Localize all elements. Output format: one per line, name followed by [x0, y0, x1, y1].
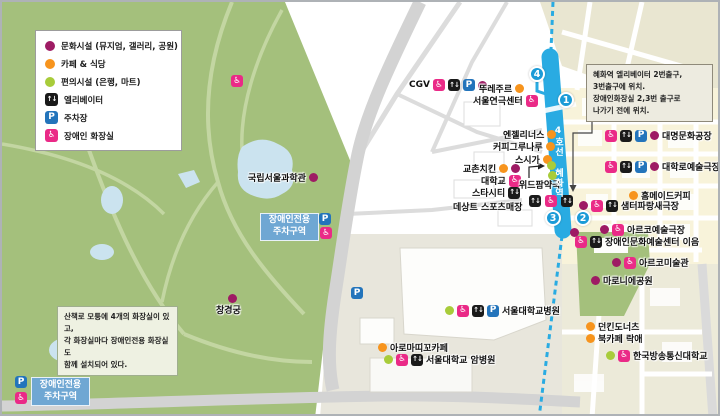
- culture-dot: [612, 258, 621, 267]
- poi-seoul-theater-center: 서울연극센터♿: [473, 94, 538, 107]
- poi-changgyeonggung: 창경궁: [216, 303, 241, 316]
- infobox-line: 산책로 모퉁에 4개의 화장실이 있고,: [64, 311, 171, 335]
- poi-label: 북카페 락애: [598, 332, 643, 345]
- wheelchair-icon: ♿: [396, 354, 408, 366]
- poi-label: 커피그루나루: [493, 140, 543, 153]
- legend-label: 문화시설 (뮤지엄, 갤러리, 공원): [61, 40, 178, 52]
- wheelchair-icon: ♿: [433, 79, 445, 91]
- legend-label: 장애인 화장실: [64, 130, 114, 142]
- exit-3: 3: [545, 210, 561, 226]
- reserved-parking-line2: 주차구역: [261, 227, 318, 239]
- poi-arko-art-museum: ♿아르코미술관: [612, 256, 689, 269]
- wheelchair-icon: ♿: [526, 95, 538, 107]
- poi-label: 샘터파랑새극장: [621, 199, 679, 212]
- legend-label: 카페 & 식당: [61, 58, 106, 70]
- legend-label: 주차장: [64, 112, 87, 124]
- wheelchair-icon: ♿: [45, 129, 58, 142]
- poi-label: 데상트 스포츠매장: [453, 200, 522, 213]
- parking-icon: P: [487, 305, 499, 317]
- poi-label: 대명문화공장: [662, 129, 712, 142]
- poi-label: 아르코미술관: [639, 256, 689, 269]
- convenience-dot: [445, 306, 454, 315]
- poi-national-science-museum: 국립서울과학관: [248, 171, 318, 184]
- infobox-line: 장애인화장실 2,3번 출구로: [593, 93, 706, 105]
- parking-icon: P: [45, 111, 58, 124]
- infobox-line: 함께 설치되어 있다.: [64, 359, 171, 371]
- park-toilets-infobox: 산책로 모퉁에 4개의 화장실이 있고, 각 화장실마다 장애인전용 화장실도 …: [57, 306, 178, 376]
- parking-icon: P: [351, 287, 363, 299]
- reserved-parking-line2: 주차구역: [32, 392, 89, 404]
- culture-dot: [228, 294, 237, 303]
- cafe-dot: [515, 84, 524, 93]
- elevator-icon: ↑↓: [411, 354, 423, 366]
- legend-item-elevator: ↑↓ 엘리베이터: [45, 93, 172, 106]
- poi-coffee-gurunaru: 커피그루나루: [493, 140, 555, 153]
- infobox-line: 나가기 전에 위치.: [593, 105, 706, 117]
- elevator-icon: ↑↓: [472, 305, 484, 317]
- poi-daehakro-arts-theater: ♿↑↓P대학로예술극장: [605, 160, 720, 173]
- poi-cgv: CGV♿↑↓P: [409, 79, 487, 91]
- culture-dot: [511, 164, 520, 173]
- station-elevator-infobox: 혜화역 엘리베이터 2번출구, 3번출구에 위치. 장애인화장실 2,3번 출구…: [586, 64, 713, 122]
- cafe-dot: [378, 343, 387, 352]
- reserved-parking-label-bottom: 장애인전용 주차구역: [31, 377, 90, 406]
- exit-2: 2: [575, 210, 591, 226]
- poi-snu-cancer-hospital: ♿↑↓서울대학교 암병원: [384, 353, 495, 366]
- cafe-dot: [586, 322, 595, 331]
- poi-saemteo-parangsae-theater: ♿↑↓샘터파랑새극장: [579, 199, 679, 212]
- poi-ieum-center: ♿↑↓장애인문화예술센터 이음: [575, 235, 699, 248]
- legend-label: 엘리베이터: [64, 94, 103, 106]
- wheelchair-icon: ♿: [457, 305, 469, 317]
- poi-label: 국립서울과학관: [248, 171, 306, 184]
- legend-label: 편의시설 (은행, 마트): [61, 76, 140, 88]
- culture-dot: [591, 276, 600, 285]
- poi-snu-hospital: ♿↑↓P서울대학교병원: [445, 304, 560, 317]
- convenience-dot: [606, 351, 615, 360]
- cafe-dot: [586, 334, 595, 343]
- wheelchair-icon: ♿: [231, 75, 243, 87]
- poi-knou-university: ♿한국방송통신대학교: [606, 349, 708, 362]
- infobox-line: 혜화역 엘리베이터 2번출구,: [593, 69, 706, 81]
- legend-item-convenience: 편의시설 (은행, 마트): [45, 75, 172, 88]
- wheelchair-icon: ♿: [575, 236, 587, 248]
- culture-dot: [309, 173, 318, 182]
- culture-dot: [45, 41, 55, 51]
- poi-label: 스타시티: [472, 186, 505, 199]
- poi-maronnier-park: 마로니에공원: [591, 274, 653, 287]
- parking-icon: P: [635, 161, 647, 173]
- wheelchair-icon: ♿: [612, 224, 624, 236]
- culture-dot: [579, 201, 588, 210]
- elevator-icon: ↑↓: [620, 130, 632, 142]
- cafe-dot: [499, 164, 508, 173]
- culture-dot: [650, 131, 659, 140]
- legend-item-parking: P 주차장: [45, 111, 172, 124]
- poi-label: 창경궁: [216, 303, 241, 316]
- reserved-parking-line1: 장애인전용: [32, 380, 89, 392]
- legend-item-culture: 문화시설 (뮤지엄, 갤러리, 공원): [45, 39, 172, 52]
- parking-icon: P: [15, 376, 27, 388]
- exit-1: 1: [558, 92, 574, 108]
- wheelchair-icon: ♿: [605, 161, 617, 173]
- infobox-line: 각 화장실마다 장애인전용 화장실도: [64, 335, 171, 359]
- legend: 문화시설 (뮤지엄, 갤러리, 공원) 카페 & 식당 편의시설 (은행, 마트…: [35, 30, 182, 151]
- reserved-parking-label-mid: 장애인전용 주차구역: [260, 213, 319, 241]
- parking-icon: P: [319, 213, 331, 225]
- poi-book-cafe-rakae: 북카페 락애: [586, 332, 643, 345]
- wheelchair-icon: ♿: [618, 350, 630, 362]
- elevator-icon: ↑↓: [529, 195, 541, 207]
- poi-label: CGV: [409, 80, 430, 90]
- wheelchair-icon: ♿: [15, 392, 27, 404]
- exit-4: 4: [529, 66, 545, 82]
- poi-label: 서울대학교병원: [502, 304, 560, 317]
- legend-item-cafe: 카페 & 식당: [45, 57, 172, 70]
- wheelchair-icon: ♿: [605, 130, 617, 142]
- poi-label: 대학로예술극장: [662, 160, 720, 173]
- poi-descente-sports: 데상트 스포츠매장: [453, 200, 522, 213]
- elevator-icon: ↑↓: [448, 79, 460, 91]
- legend-item-accessible-toilet: ♿ 장애인 화장실: [45, 129, 172, 142]
- elevator-icon: ↑↓: [45, 93, 58, 106]
- elevator-icon: ↑↓: [590, 236, 602, 248]
- convenience-dot: [384, 355, 393, 364]
- poi-daemyung-culture-factory: ♿↑↓P대명문화공장: [605, 129, 712, 142]
- culture-dot: [650, 162, 659, 171]
- poi-label: 장애인문화예술센터 이음: [605, 235, 699, 248]
- parking-icon: P: [635, 130, 647, 142]
- parking-icon: P: [463, 79, 475, 91]
- poi-label: 마로니에공원: [603, 274, 653, 287]
- infobox-line: 3번출구에 위치.: [593, 81, 706, 93]
- poi-label: 한국방송통신대학교: [633, 349, 708, 362]
- station-name-label: 4호선 혜화역: [552, 126, 565, 198]
- convenience-dot: [45, 77, 55, 87]
- poi-label: 서울대학교 암병원: [426, 353, 495, 366]
- culture-dot: [570, 228, 579, 237]
- elevator-icon: ↑↓: [606, 200, 618, 212]
- elevator-icon: ↑↓: [620, 161, 632, 173]
- cafe-dot: [45, 59, 55, 69]
- poi-starcity: 스타시티↑↓: [472, 186, 520, 199]
- poi-label: 서울연극센터: [473, 94, 523, 107]
- wheelchair-icon: ♿: [320, 227, 332, 239]
- reserved-parking-line1: 장애인전용: [261, 215, 318, 227]
- accessibility-map: CGV♿↑↓P뚜레주르서울연극센터♿엔젤리너스커피그루나루스시가교촌치킨대학교♿…: [0, 0, 720, 416]
- wheelchair-icon: ♿: [591, 200, 603, 212]
- culture-dot: [600, 225, 609, 234]
- wheelchair-icon: ♿: [624, 257, 636, 269]
